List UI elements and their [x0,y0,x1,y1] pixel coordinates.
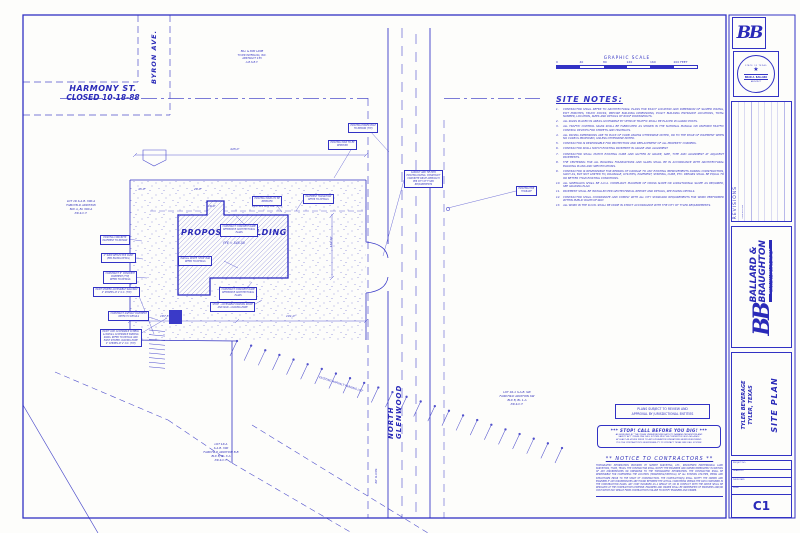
dimension-label: 60' R.O.W. [374,468,378,484]
site-note-number: 11. [556,190,563,194]
scale-bar-cell [674,66,697,68]
stop-call-notice: *** STOP! CALL BEFORE YOU DIG! *** AS RE… [597,425,721,448]
site-note-number: 13. [556,204,563,208]
site-note-number: 10. [556,182,563,189]
site-note-text: CONTRACTOR SHALL MATCH EXISTING PAVEMENT… [563,147,724,151]
lot-label-line: P.R.S.C.T. [42,211,120,215]
site-note-number: 6. [556,147,563,151]
dimension-label: 187.5' [160,314,169,318]
callout-box: EXISTING POWER POLETO REMAIN (TYP) [348,123,378,133]
site-note-text: CONTRACTOR SHALL MATCH EXISTING CURB AND… [563,153,724,160]
site-note-text: CONTRACTOR SHALL REFER TO ARCHITECTURAL … [563,108,724,119]
site-note-text: CONTRACTOR SHALL COORDINATE AND COMPLY W… [563,196,724,203]
site-note-number: 5. [556,142,563,146]
site-note-text: PAVEMENT SHALL BE INSTALLED PER GEOTECHN… [563,190,724,194]
dimension-label: 16.0' [208,204,216,208]
callout-box: CONSTRUCT CONCRETE RAMPREFERENCE ARCHITE… [220,224,258,237]
dimension-label: 101.0' [286,314,295,318]
callout-line: PLANS [222,295,255,298]
site-note: 5.CONTRACTOR IS RESPONSIBLE FOR PROTECTI… [556,142,724,146]
lot-label-line: P.R.S.C.T. [478,402,556,406]
site-note: 8.THE CENTERING FOR ALL BUILDING FOUNDAT… [556,161,724,168]
seal-title: ARCHITECT [751,81,761,83]
callout-box: SAWCUT AND TIE INTOEXISTING PAVING. CONS… [404,170,443,188]
callout-line: REMOVED [255,201,280,204]
firm-rotated: BB BALLARD & BRAUGHTON A R C H I T E C T… [733,229,791,347]
site-notes-title: SITE NOTES: [556,95,724,104]
scale-tick: 40 [580,60,584,64]
field-row: PROJECT NO. [732,461,791,470]
callout-line: PAVEMENT TO REMAIN [103,240,128,243]
callout-box: INSTALL WHITE 'STOP' BARREFER TO DETAILS [178,256,212,266]
project-name: TYLER BEVERAGE [741,357,748,453]
callout-box: CONSTRUCT 6" CONCRETEPAVEMENT (TYP)REFER… [103,271,137,284]
site-note-number: 8. [556,161,563,168]
callout-line: REFER TO DETAILS [106,279,135,282]
lot-label-line: P.R.S.C.T. [182,458,260,462]
firm-name-2: BRAUGHTON [759,240,768,302]
callout-box: CONSTRUCT ASPHALT PAVEMENTREFER TO DETAI… [108,311,149,321]
revisions-block: REVISIONS DESCRIPTION [731,101,792,222]
stop-call-body: AS REQUIRED BY 'THE TEXAS UNDERGROUND FA… [601,434,717,446]
owner-note: BILL & PAM LAMBTYLER INTERLOG, INC.ABSTR… [222,50,282,64]
callout-line: HYDRANT [519,191,535,194]
firm-names: BALLARD & BRAUGHTON A R C H I T E C T U … [750,240,775,302]
site-note-number: 7. [556,153,563,160]
firm-block: BB BALLARD & BRAUGHTON A R C H I T E C T… [731,226,792,348]
site-note: 4.ALL PAVING DIMENSIONS ARE TO BACK OF C… [556,134,724,141]
site-note-number: 1. [556,108,563,119]
building-ffe: FFE = 548.50 [178,241,290,245]
sheet-number: C1 [732,495,791,517]
stop-call-title: *** STOP! CALL BEFORE YOU DIG! *** [601,428,717,433]
site-note-text: CONTRACTOR IS RESPONSIBLE FOR REPAIRS OF… [563,170,724,181]
revisions-col-description: DESCRIPTION [742,205,744,219]
graphic-scale: GRAPHIC SCALE 04080120160200 FEET [556,55,698,69]
sheet-title: SITE PLAN [770,357,782,453]
field-row: SHEET [732,487,791,496]
site-plan-sheet: HARMONY ST. CLOSED 10-18-88 BYRON AVE. N… [0,0,800,533]
site-note: 11.PAVEMENT SHALL BE INSTALLED PER GEOTE… [556,190,724,194]
field-row: ISSUE DATE [732,478,791,487]
callout-line: 4" STRIPES AT 2' O.C. (TYP) [96,292,138,295]
callout-box: PAINT 'VAN' ACCESSIBLE SYMBOL& INSTALL A… [100,329,142,347]
owner-note-line: A.B.S.B.T. [222,61,282,65]
callout-line: REFER TO DETAILS [111,316,147,319]
site-note-text: THE CENTERING FOR ALL BUILDING FOUNDATIO… [563,161,724,168]
scale-bar-cell [650,66,673,68]
field-rows: PROJECT NO.DRAWN BYISSUE DATESHEET [732,461,791,495]
site-note-text: ALL TRAFFIC CONTROL SIGNS SHALL BE FABRI… [563,125,724,132]
harmony-line2: CLOSED 10-18-88 [48,93,158,102]
review-notice: PLANS SUBJECT TO REVIEW AND APPROVAL BY … [615,404,710,419]
callout-box: CONSTRUCT CONCRETE RAMPREFERENCE ARCHITE… [219,287,257,300]
site-notes: SITE NOTES: 1.CONTRACTOR SHALL REFER TO … [556,95,724,209]
callout-line: REFER TO DETAILS [306,199,332,202]
callout-box: EXISTING TANK TO BEREMOVED [328,140,357,150]
callout-box: PAINT STRIPED ACCESSIBLE WALKWAY4" STRIP… [93,287,140,297]
seal-circle: STATE OF TEXAS ★ BRAD A. BALLARD ARCHITE… [737,55,775,93]
callout-box: EXISTING CONCRETEPAVEMENT TO REMAIN [100,235,130,245]
site-note: 13.ALL WORK IN THE R.O.W. SHALL BE DONE … [556,204,724,208]
site-note-text: ALL SIDEWALKS SHALL BE A.D.A. COMPLIANT.… [563,182,724,189]
site-note-number: 9. [556,170,563,181]
project-city: TYLER, TEXAS [748,357,755,453]
dimension-label: 162.50' [329,236,333,247]
callout-box: EXISTING FIREHYDRANT [516,186,537,196]
scale-tick: 160 [650,60,656,64]
review-line2: APPROVAL BY JURISDICTIONAL ENTITIES [617,412,708,417]
site-note-text: ALL WORK IN THE R.O.W. SHALL BE DONE IN … [563,204,724,208]
firm-address: OLD BULLARD ROAD • TYLER, TEXAS • TEL • … [772,240,774,302]
firm-logo-box: BB [732,17,766,49]
sheet-fields: PROJECT NO.DRAWN BYISSUE DATESHEET C1 [731,460,792,518]
lot-label: LOT 1R S.A.B. 300-AFAIRCHILD ADDITIONBLK… [42,199,120,215]
site-note-number: 2. [556,120,563,124]
firm-monogram: BB [749,304,775,335]
project-block: TYLER BEVERAGE TYLER, TEXAS SITE PLAN [731,352,792,456]
dimension-label: 445.0' [230,147,239,151]
star-icon: ★ [753,67,758,73]
graphic-scale-bar [556,65,698,69]
dimension-label: 45.0' [138,187,146,191]
plan-linework [0,0,800,533]
site-note-number: 12. [556,196,563,203]
byron-ave-label: BYRON AVE. [150,26,158,84]
site-note: 6.CONTRACTOR SHALL MATCH EXISTING PAVEME… [556,147,724,151]
site-notes-list: 1.CONTRACTOR SHALL REFER TO ARCHITECTURA… [556,108,724,208]
scale-bar-cell [627,66,650,68]
project-name-block: TYLER BEVERAGE TYLER, TEXAS [741,357,757,453]
north-glenwood-label: NORTH GLENWOOD [387,355,403,439]
site-note-text: ALL PAVING DIMENSIONS ARE TO BACK OF CUR… [563,134,724,141]
notice-to-contractors: ** NOTICE TO CONTRACTORS ** TOPOGRAPHIC … [596,456,723,497]
site-note: 9.CONTRACTOR IS RESPONSIBLE FOR REPAIRS … [556,170,724,181]
callout-box: PAVEMENT TRANSITIONREFER TO DETAILS [303,194,334,204]
callout-box: 4" WIDE REFLECTIVE PAINT(PER PAVING DETA… [101,253,136,263]
lot-label: LOT 1R-1 S.A.B. SWFAIRCHILD ADDITION SWB… [478,390,556,406]
callout-line: TO REMAIN (TYP) [351,128,376,131]
scale-tick: 80 [603,60,607,64]
site-note: 2.ALL SIGNS PLACED IN AREAS ACCESSIBLE B… [556,120,724,124]
scale-bar-cell [604,66,627,68]
dimension-label: 28.0' [194,187,202,191]
scale-tick: 0 [556,60,558,64]
site-note: 7.CONTRACTOR SHALL MATCH EXISTING CURB A… [556,153,724,160]
site-note: 12.CONTRACTOR SHALL COORDINATE AND COMPL… [556,196,724,203]
site-note-number: 3. [556,125,563,132]
callout-line: 4" STRIPES AT 2' O.C. (TYP) [103,343,140,346]
field-row: DRAWN BY [732,470,791,479]
stop-call-body-line: IT IS THE CONTRACTOR'S RESPONSIBILITY TO… [601,442,717,445]
contractors-body: TOPOGRAPHIC INFORMATION PROVIDED BY SUMM… [596,464,723,497]
harmony-line1: HARMONY ST. [48,84,158,93]
architect-seal: STATE OF TEXAS ★ BRAD A. BALLARD ARCHITE… [733,51,779,97]
firm-logo-monogram: BB [737,23,762,43]
scale-tick: 200 FEET [674,60,688,64]
callout-line: PLANS [223,232,256,235]
site-note: 1.CONTRACTOR SHALL REFER TO ARCHITECTURA… [556,108,724,119]
callout-line: AND SIGN - LOADING ZONE [213,307,253,310]
lot-label: LOT 1R-AS.A.B. 300FAIRCHILD ADDITION B-B… [182,442,260,462]
site-note-number: 4. [556,134,563,141]
scale-bar-cell [557,66,580,68]
callout-box: EXISTING TANKS TO BEREMOVED [252,196,282,206]
site-note: 10.ALL SIDEWALKS SHALL BE A.D.A. COMPLIA… [556,182,724,189]
site-note: 3.ALL TRAFFIC CONTROL SIGNS SHALL BE FAB… [556,125,724,132]
callout-line: REMOVED [331,145,355,148]
contractors-title: ** NOTICE TO CONTRACTORS ** [596,456,723,462]
callout-box: STOP! - ACCESSIBLE PARKING SPACEAND SIGN… [210,302,255,312]
site-note-text: CONTRACTOR IS RESPONSIBLE FOR PROTECTION… [563,142,724,146]
callout-line: (PER PAVING DETAIL) [104,258,134,261]
callout-line: REQUIREMENTS [407,184,441,187]
scale-tick: 120 [627,60,633,64]
scale-bar-cell [580,66,603,68]
seal-name: BRAD A. BALLARD [744,74,768,80]
site-note-text: ALL SIGNS PLACED IN AREAS ACCESSIBLE BY … [563,120,724,124]
harmony-street-label: HARMONY ST. CLOSED 10-18-88 [48,84,158,102]
callout-line: REFER TO DETAILS [181,261,210,264]
revisions-title: REVISIONS [733,186,738,219]
